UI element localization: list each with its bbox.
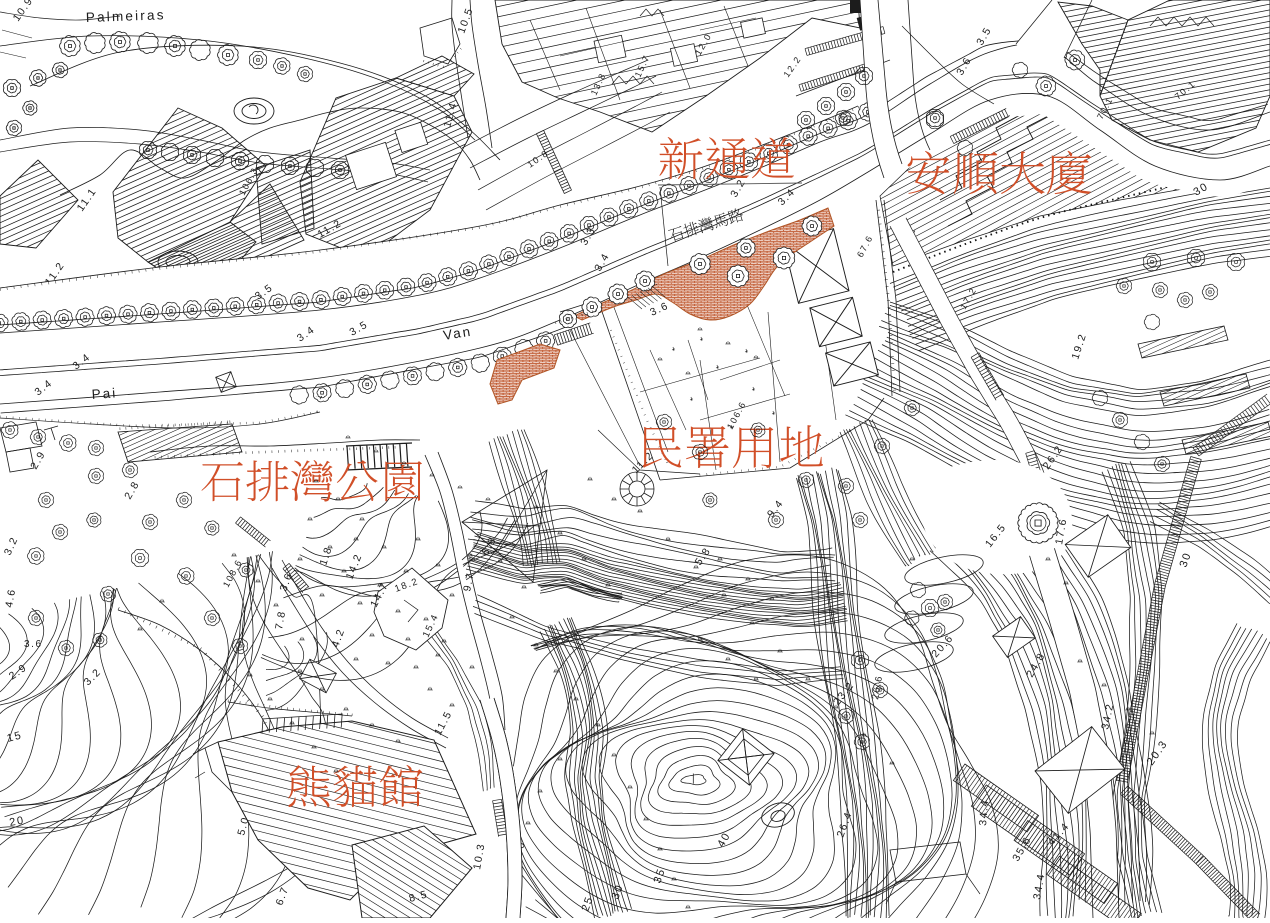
svg-text:Palmeiras: Palmeiras (86, 7, 166, 25)
svg-text:34.4: 34.4 (977, 798, 991, 826)
svg-text:Pai: Pai (91, 385, 117, 402)
svg-text:3.6: 3.6 (24, 639, 43, 650)
